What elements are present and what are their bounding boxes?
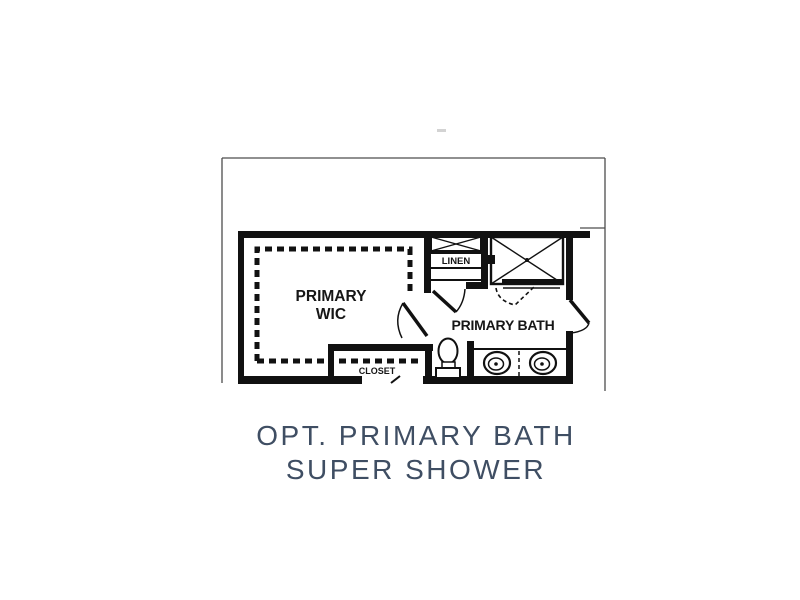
- linen-bottom-wall-stub: [466, 282, 488, 289]
- bath-right-door-arc: [571, 323, 589, 333]
- plan-caption-line1: OPT. PRIMARY BATH: [16, 419, 800, 453]
- toilet-base: [436, 368, 460, 378]
- bath-right-door-leaf: [570, 300, 589, 323]
- floor-plan-page: PRIMARY WIC LINEN PRIMARY BATH CLOSET OP…: [0, 0, 800, 600]
- closet-left-wall: [328, 344, 334, 384]
- toilet-niche-wall: [425, 344, 432, 384]
- sink-drain: [540, 362, 544, 366]
- faint-watermark-mark: [437, 129, 446, 132]
- bath-door-arc: [456, 289, 465, 312]
- floor-plan-drawing: PRIMARY WIC LINEN PRIMARY BATH CLOSET: [0, 0, 800, 600]
- right-wall-lower: [566, 331, 573, 384]
- vanity-sink-left: [484, 352, 510, 374]
- sink-drain: [494, 362, 498, 366]
- bottom-wall-left: [238, 376, 362, 384]
- room-label-linen: LINEN: [442, 256, 471, 267]
- room-label-closet: CLOSET: [359, 366, 396, 376]
- door-symbols: [391, 289, 589, 383]
- right-wall-upper: [566, 232, 573, 300]
- toilet: [436, 339, 460, 379]
- wic-linen-divider-wall: [424, 231, 431, 293]
- toilet-tank: [439, 339, 458, 364]
- bath-door-leaf: [433, 291, 456, 312]
- room-label-primary-wic-line2: WIC: [316, 306, 346, 323]
- room-label-primary-bath: PRIMARY BATH: [451, 317, 554, 333]
- closet-door-tick: [391, 376, 400, 383]
- shower-drain: [525, 258, 529, 262]
- shower-door-dashed-swing: [496, 287, 534, 305]
- shower-head-icon: [486, 255, 495, 264]
- plan-caption-line2: SUPER SHOWER: [16, 453, 800, 487]
- super-shower: [486, 237, 563, 305]
- double-vanity: [474, 349, 566, 377]
- vanity-left-wall: [467, 341, 474, 384]
- plan-caption: OPT. PRIMARY BATH SUPER SHOWER: [16, 419, 800, 487]
- room-label-primary-wic-line1: PRIMARY: [296, 288, 368, 305]
- closet-top-wall: [328, 344, 433, 351]
- wic-door-leaf: [403, 303, 427, 336]
- wic-door-arc: [398, 303, 403, 338]
- vanity-sink-right: [530, 352, 556, 374]
- left-wall: [238, 231, 244, 383]
